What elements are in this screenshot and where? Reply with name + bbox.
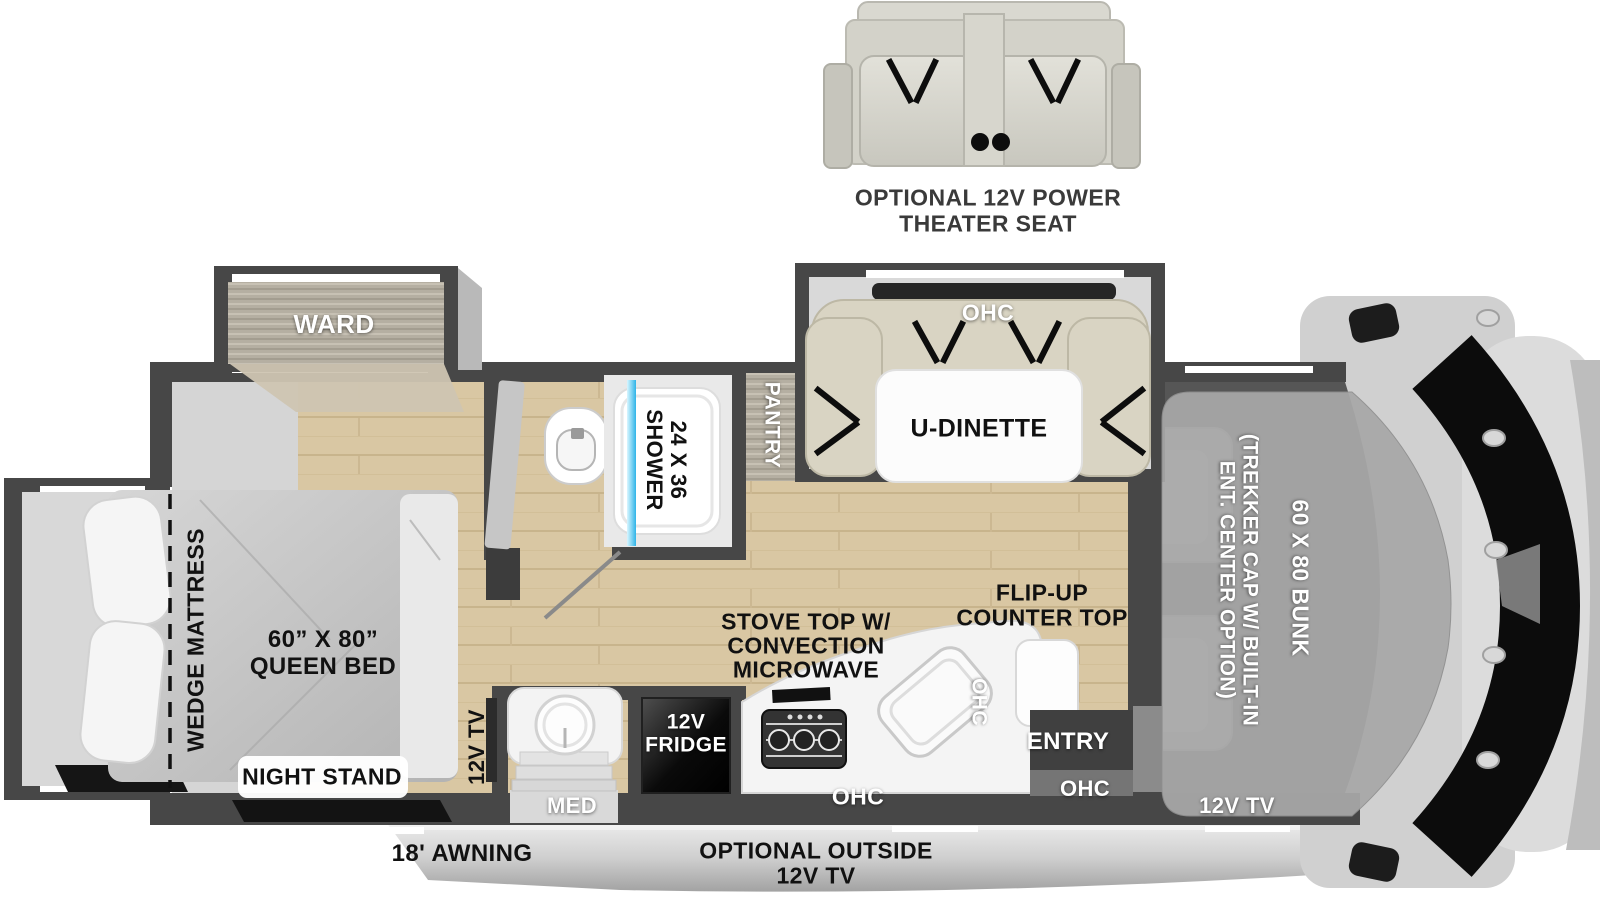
theater-seat-label-line2: THEATER SEAT <box>899 212 1077 237</box>
bunk-label: 60 X 80 BUNK <box>1288 500 1313 657</box>
pantry-label: PANTRY <box>760 382 783 468</box>
med-cabinet-label: MED <box>547 794 597 818</box>
fridge-label: 12V FRIDGE <box>645 711 727 756</box>
cupholder-icon <box>971 133 989 151</box>
queen-bed-label-line2: QUEEN BED <box>250 654 396 680</box>
outside-tv-label-line2: 12V TV <box>776 864 855 889</box>
counter-ohc-label: OHC <box>967 678 990 726</box>
entry-label: ENTRY <box>1027 729 1109 755</box>
ward-label: WARD <box>293 310 374 338</box>
theater-seat-label-line1: OPTIONAL 12V POWER <box>855 186 1121 211</box>
queen-bed-label-line1: 60” X 80” <box>268 627 378 653</box>
cupholder-icon <box>992 133 1010 151</box>
u-dinette-label: U-DINETTE <box>911 416 1048 443</box>
dinette-ohc-label: OHC <box>962 301 1014 326</box>
round-sink-icon <box>536 696 594 754</box>
stove-label-line3: MICROWAVE <box>733 658 879 683</box>
awning-label: 18' AWNING <box>392 841 533 867</box>
floorplan-image: OPTIONAL 12V POWER THEATER SEAT WARD WED… <box>0 0 1600 918</box>
toilet-icon <box>545 408 607 484</box>
trekker-cap-label: (TREKKER CAP W/ BUILT-IN ENT. CENTER OPT… <box>1215 434 1260 726</box>
flip-up-label-line2: COUNTER TOP <box>956 606 1127 631</box>
night-stand-label: NIGHT STAND <box>242 765 402 790</box>
floorplan-graphics <box>0 0 1600 918</box>
dinette-slideout <box>795 263 1165 482</box>
theater-seat-graphic <box>824 2 1140 168</box>
bedroom-tv-label: 12V TV <box>465 709 489 785</box>
shower-label: 24 X 36 SHOWER <box>642 409 690 510</box>
stove-label-line2: CONVECTION <box>727 634 884 659</box>
stove-icon <box>762 710 846 768</box>
wedge-mattress-label: WEDGE MATTRESS <box>184 528 209 752</box>
entry-ohc-label: OHC <box>1060 777 1110 801</box>
flip-up-label-line1: FLIP-UP <box>996 581 1088 606</box>
shower-glass <box>627 380 636 546</box>
stove-label-line1: STOVE TOP W/ <box>721 610 891 635</box>
outside-tv-label-line1: OPTIONAL OUTSIDE <box>699 839 932 864</box>
front-tv-label: 12V TV <box>1199 794 1275 818</box>
kitchen-ohc-label: OHC <box>832 785 884 810</box>
